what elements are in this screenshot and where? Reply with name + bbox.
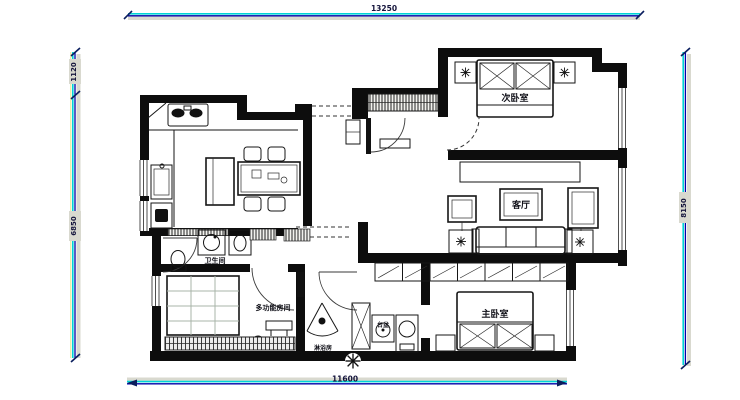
shower-zone-door [319, 272, 357, 310]
foyer-bench [380, 139, 410, 148]
window-kitchen-left-1 [138, 160, 149, 196]
master-bedroom: 主卧室 [436, 292, 554, 351]
opening-dashed-top [312, 106, 352, 116]
cabinet-left [448, 196, 476, 222]
room-label-multi-room: 多功能房间 [256, 303, 291, 312]
bedroom2-door-arc [447, 118, 479, 150]
entry-door [366, 118, 405, 154]
dim-right: 8150 [680, 198, 688, 218]
shelf-hatch [284, 229, 310, 241]
nightstand [535, 335, 554, 351]
shelf-hatch [250, 229, 276, 240]
doors [163, 106, 479, 310]
stool [266, 321, 292, 336]
cabinet-right [568, 188, 598, 228]
window-multiroom-left [150, 276, 161, 306]
dim-left-lower: 6850 [70, 216, 78, 236]
dining-island [206, 158, 234, 205]
windows [138, 88, 628, 346]
side-table [567, 230, 593, 254]
sofa [472, 227, 572, 254]
plant-bottom [345, 353, 361, 369]
side-table [449, 230, 473, 253]
kitchen-dining [149, 104, 300, 228]
nightstand [455, 62, 476, 83]
window-master-right [564, 290, 576, 346]
secondary-bedroom: 次卧室 [455, 60, 575, 117]
room-label-bathroom: 卫生间 [205, 256, 226, 265]
bed-master [457, 292, 533, 350]
bed-secondary [477, 60, 553, 117]
tatami-bed [167, 276, 239, 335]
water-heater [396, 315, 418, 352]
tv-console [460, 162, 580, 182]
dining-table [238, 162, 300, 195]
kitchen-cabinet [151, 203, 172, 228]
room-label-shower: 淋浴房 [314, 344, 332, 352]
nightstand [554, 62, 575, 83]
nightstand [436, 335, 455, 351]
kitchen-sink [151, 164, 172, 199]
corner-shower [307, 303, 338, 336]
dim-bottom: 11600 [332, 375, 358, 384]
multi-room: 多功能房间 [165, 276, 295, 350]
room-label-master-bedroom: 主卧室 [481, 308, 508, 320]
room-label-secondary-bedroom: 次卧室 [501, 92, 528, 104]
dim-left-upper: 1120 [70, 62, 78, 82]
cooktop [168, 104, 208, 126]
shower-zone: 淋浴房 台盆 [307, 303, 418, 352]
window-living-right [616, 168, 628, 250]
floor-plan-canvas: 13250 11600 1120 6850 8150 [0, 0, 740, 400]
shoe-cabinet [346, 120, 360, 144]
window-kitchen-left-2 [138, 201, 149, 231]
living-room: 客厅 [448, 162, 598, 254]
dim-top: 13250 [371, 4, 397, 13]
window-bedroom2-right [616, 88, 628, 148]
cabinet-x [352, 303, 370, 349]
room-label-living: 客厅 [511, 199, 530, 211]
floor-plan-svg: 13250 11600 1120 6850 8150 [0, 0, 740, 400]
wardrobe-row [375, 263, 568, 281]
fixture-label-basin: 台盆 [377, 321, 390, 329]
